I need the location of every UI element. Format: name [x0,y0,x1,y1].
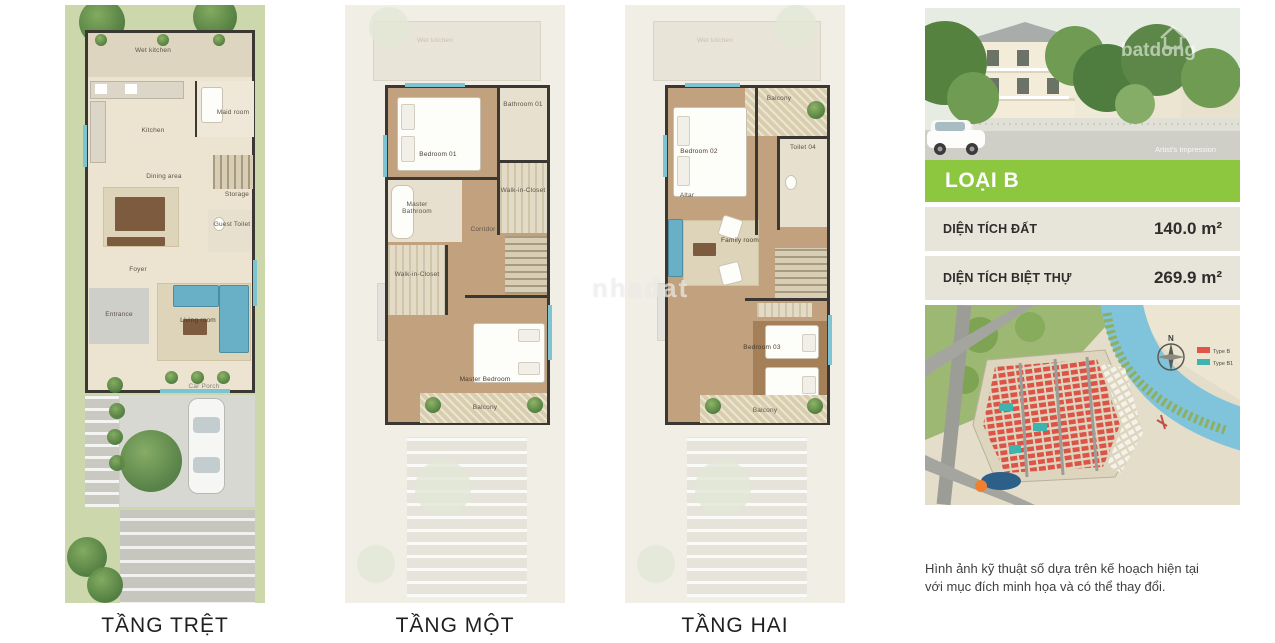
pillow [677,116,690,146]
hedge-icon [109,403,125,419]
plant-icon [213,34,225,46]
plant-icon [527,397,543,413]
spec-row-land-area: DIỆN TÍCH ĐẤT 140.0 m² [925,207,1240,251]
bathroom01-area [500,88,547,160]
room-label: Bedroom 01 [408,151,468,158]
car-rear-window [193,457,220,473]
window [663,135,667,177]
room-label: Foyer [108,266,168,273]
disclaimer-line2: với mục đích minh họa và có thể thay đổi… [925,578,1240,596]
room-label: Bathroom 01 [493,101,553,108]
stairs [775,248,827,300]
wall [388,177,498,180]
sideboard [107,237,165,246]
floorplan-first: Wet kitchen Entrance Bedroom 01 Bathroom… [345,5,565,603]
room-label: Altar [657,192,717,199]
wall [465,295,550,298]
room-label: Kitchen [123,127,183,134]
wall [755,88,758,235]
bed-icon [201,87,223,123]
room-label: Wet kitchen [123,47,183,54]
plant-icon [157,34,169,46]
bed-icon [473,323,545,383]
room-label: Entrance [89,311,149,318]
wall [777,136,830,139]
window [685,83,740,87]
stairs [213,155,253,189]
pillow [677,156,690,186]
plant-icon [705,398,721,414]
ghost-tree [695,460,751,516]
floor-caption-first: TẦNG MỘT [345,614,565,638]
room-label: Walk-in-Closet [387,271,447,278]
ghost-tree [415,460,471,516]
toilet-icon [785,175,797,190]
driveway [120,510,255,603]
dining-table [115,197,165,231]
ghost-tree [357,545,395,583]
window [405,83,465,87]
closet-area [757,303,812,317]
floorplan-ground: Wet kitchen Maid room Kitchen Dining are… [65,5,265,603]
ghost-room-label: Wet kitchen [685,37,745,44]
villa-photo-art: batdong Artist's Impression [925,8,1240,160]
room-label: Car Porch [174,383,234,390]
wall [445,245,448,315]
spec-value: 140.0 m² [1154,219,1222,239]
spec-row-villa-area: DIỆN TÍCH BIỆT THỰ 269.9 m² [925,256,1240,300]
room-label: Master Bedroom [455,376,515,383]
room-label: Storage [215,191,259,198]
sofa-icon [668,219,683,277]
walk-in-closet-area [388,245,446,315]
ghost-tree [775,5,817,47]
room-label: Guest Toilet [210,221,254,228]
pillow [518,329,540,342]
pillow [401,104,415,130]
site-plan-art: N Type B Type B1 [925,305,1240,505]
legend-type-b1: Type B1 [1213,361,1233,367]
floorplan-second: Wet kitchen Entrance Bedroom [625,5,845,603]
type-title-bar: LOẠI B [925,160,1240,202]
disclaimer-text: Hình ảnh kỹ thuật số dựa trên kế hoạch h… [925,560,1240,596]
window [383,135,387,177]
room-label: Toilet 04 [773,144,833,151]
compass-label: N [1168,334,1174,343]
ghost-tree [637,545,675,583]
plant-icon [807,101,825,119]
sofa-icon [173,285,219,307]
spec-label: DIỆN TÍCH BIỆT THỰ [943,271,1072,285]
room-label: Balcony [749,95,809,102]
window [828,315,832,365]
room-label: Corridor [453,226,513,233]
ghost-tree [369,7,409,47]
room-label: Living room [168,317,228,324]
room-label: Dining area [134,173,194,180]
window [548,305,552,360]
photo-watermark-text: batdong [1121,40,1196,61]
plant-icon [425,397,441,413]
wall [500,160,547,163]
stairs [505,236,547,294]
stove-icon [95,84,107,94]
coffee-table [693,243,716,256]
pillow [802,334,816,352]
room-label: Bedroom 02 [669,148,729,155]
legend-type-b: Type B [1213,349,1230,355]
watermark: nhadat [592,273,689,304]
tree-icon [120,430,182,492]
ghost-room-label: Wet kitchen [405,37,465,44]
floor-caption-ground: TẦNG TRỆT [65,614,265,638]
room-label: Maid room [203,109,263,116]
bed-icon [765,325,819,359]
guest-toilet-area [208,210,252,252]
floor-caption-second: TẦNG HAI [625,614,845,638]
room-label: Balcony [455,404,515,411]
tree-icon [87,567,123,603]
photo-caption: Artist's Impression [1155,145,1216,154]
wet-kitchen-area [88,33,252,77]
disclaimer-line1: Hình ảnh kỹ thuật số dựa trên kế hoạch h… [925,560,1240,578]
window [253,260,257,306]
site-plan-map: N Type B Type B1 [925,305,1240,505]
car-windshield [193,417,220,433]
spec-value: 269.9 m² [1154,268,1222,288]
sink-icon [125,84,137,94]
ghost-driveway [407,437,527,597]
ghost-driveway [687,437,807,597]
room-label: Bedroom 03 [732,344,792,351]
room-label: Master Bathroom [395,201,439,216]
kitchen-counter [90,101,106,163]
room-label: Family room [710,237,770,244]
hedge-icon [107,429,123,445]
plant-icon [95,34,107,46]
villa-photo: batdong Artist's Impression [925,8,1240,160]
hedge-icon [107,377,123,393]
pillow [802,376,816,394]
window [83,125,87,167]
car-icon [188,398,225,494]
pillow [518,362,540,375]
room-label: Balcony [735,407,795,414]
plant-icon [807,398,823,414]
wall [745,298,830,301]
spec-label: DIỆN TÍCH ĐẤT [943,222,1037,236]
room-label: Walk-in-Closet [493,187,553,194]
walk-in-closet-area [500,163,547,233]
bed-icon [397,97,481,171]
